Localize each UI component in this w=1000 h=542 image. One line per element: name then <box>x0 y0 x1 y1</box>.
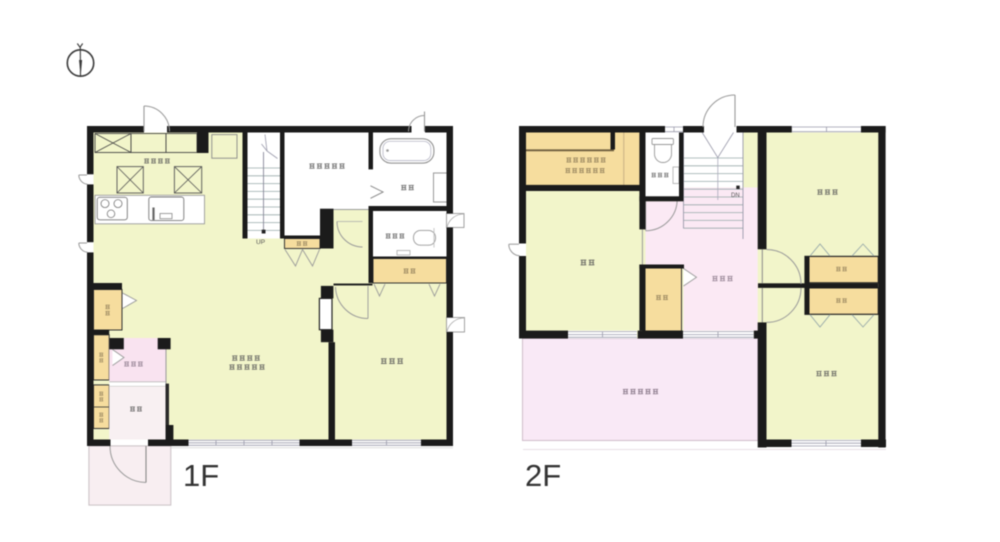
svg-text:1F: 1F <box>183 458 219 493</box>
svg-text:2F: 2F <box>525 458 561 493</box>
svg-text:DN: DN <box>731 193 740 199</box>
svg-text:UP: UP <box>256 239 265 246</box>
